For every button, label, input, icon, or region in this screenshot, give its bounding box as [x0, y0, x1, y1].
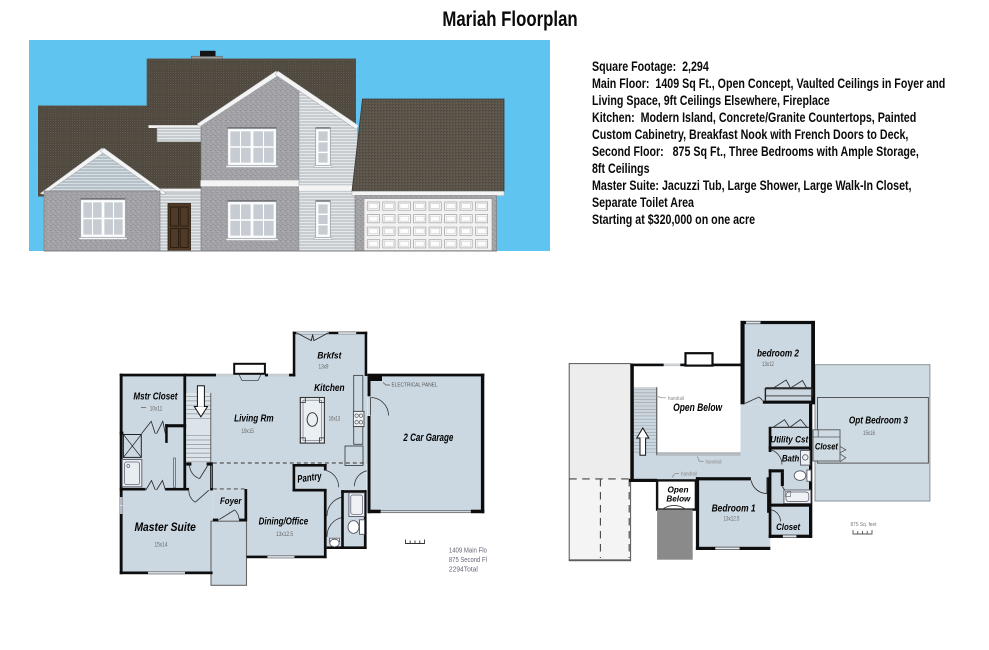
svg-text:Closet: Closet	[776, 522, 801, 533]
svg-text:Master Suite: Master Suite	[134, 522, 196, 534]
svg-text:Living Rm: Living Rm	[234, 413, 274, 425]
svg-text:Closet: Closet	[815, 441, 839, 452]
svg-text:13x12.5: 13x12.5	[724, 517, 740, 523]
svg-text:Foyer: Foyer	[220, 496, 243, 507]
svg-text:Brkfst: Brkfst	[317, 351, 342, 362]
svg-text:875 Sq. feet: 875 Sq. feet	[851, 522, 877, 528]
svg-text:19x15: 19x15	[241, 428, 254, 435]
svg-text:2294Total: 2294Total	[449, 567, 478, 574]
svg-text:13x9: 13x9	[319, 364, 329, 371]
svg-text:Bath: Bath	[782, 454, 800, 465]
svg-text:2 Car Garage: 2 Car Garage	[403, 432, 454, 444]
svg-text:Kitchen: Kitchen	[314, 382, 345, 394]
svg-text:bedroom 2: bedroom 2	[757, 348, 799, 359]
svg-text:15x16: 15x16	[863, 431, 875, 437]
svg-text:Utility Cst: Utility Cst	[770, 434, 809, 445]
svg-text:Below: Below	[666, 494, 691, 504]
svg-text:15x14: 15x14	[155, 542, 168, 549]
svg-text:ELECTRICAL PANEL: ELECTRICAL PANEL	[392, 383, 438, 389]
svg-text:Dining/Office: Dining/Office	[259, 517, 309, 528]
svg-text:10x11: 10x11	[150, 406, 163, 413]
svg-text:13x12.5: 13x12.5	[276, 531, 293, 538]
svg-text:Opt Bedroom 3: Opt Bedroom 3	[849, 415, 908, 427]
svg-text:875 Second Fl: 875 Second Fl	[449, 557, 487, 564]
svg-text:1409 Main Flo: 1409 Main Flo	[449, 548, 487, 555]
svg-text:handrail: handrail	[681, 471, 697, 477]
svg-text:Open Below: Open Below	[673, 402, 723, 414]
svg-text:16x13: 16x13	[329, 416, 341, 423]
svg-text:Mstr Closet: Mstr Closet	[133, 392, 178, 403]
svg-text:Bedroom 1: Bedroom 1	[712, 503, 756, 514]
svg-text:handrail: handrail	[706, 459, 722, 465]
svg-text:13x12: 13x12	[762, 362, 774, 368]
